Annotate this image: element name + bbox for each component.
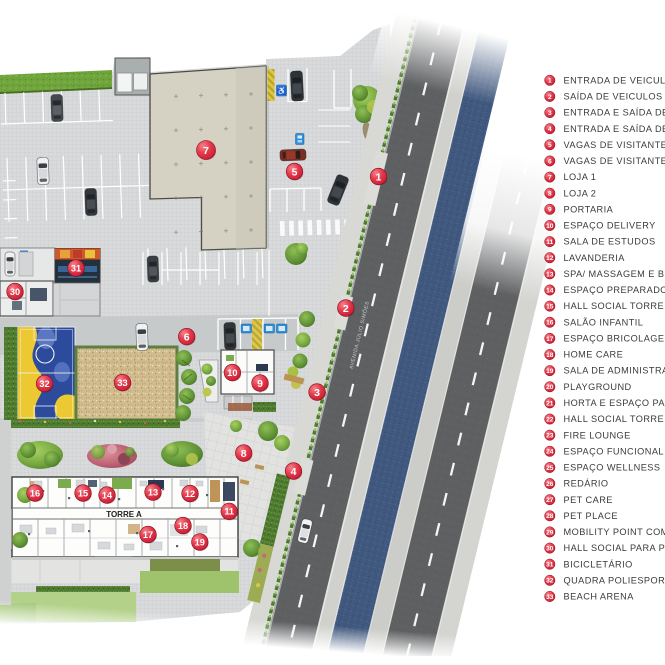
svg-text:SALÃO INFANTIL: SALÃO INFANTIL [564, 317, 644, 327]
svg-text:8: 8 [548, 191, 552, 198]
svg-text:22: 22 [546, 416, 554, 423]
svg-text:30: 30 [546, 545, 554, 552]
svg-text:SALA DE ADMINISTRAÇÃO: SALA DE ADMINISTRAÇÃO [564, 366, 665, 376]
svg-text:4: 4 [291, 466, 297, 478]
svg-text:16: 16 [30, 488, 40, 498]
svg-text:ESPAÇO WELLNESS: ESPAÇO WELLNESS [564, 463, 661, 473]
svg-text:PET CARE: PET CARE [564, 495, 613, 505]
svg-text:3: 3 [314, 387, 320, 399]
svg-text:15: 15 [546, 304, 554, 311]
svg-text:19: 19 [195, 537, 205, 547]
svg-text:2: 2 [548, 94, 552, 101]
svg-text:7: 7 [548, 174, 552, 181]
svg-text:ESPAÇO PREPARADO PARA MERCADO: ESPAÇO PREPARADO PARA MERCADO [564, 285, 665, 295]
svg-text:LAVANDERIA: LAVANDERIA [564, 253, 626, 263]
svg-text:♿: ♿ [277, 86, 287, 96]
svg-text:4: 4 [548, 126, 552, 133]
svg-text:31: 31 [546, 562, 554, 569]
svg-text:17: 17 [546, 336, 554, 343]
svg-text:SALA DE ESTUDOS: SALA DE ESTUDOS [564, 237, 656, 247]
svg-text:23: 23 [546, 433, 554, 440]
svg-text:LOJA 1: LOJA 1 [564, 172, 597, 182]
svg-text:8: 8 [241, 448, 247, 460]
svg-text:7: 7 [203, 145, 209, 157]
svg-text:32: 32 [39, 379, 49, 389]
svg-text:18: 18 [178, 521, 188, 531]
svg-text:6: 6 [184, 331, 190, 343]
svg-text:25: 25 [546, 465, 554, 472]
svg-text:16: 16 [546, 320, 554, 327]
svg-text:10: 10 [546, 223, 554, 230]
svg-text:30: 30 [10, 287, 20, 297]
svg-text:10: 10 [227, 368, 237, 378]
svg-text:26: 26 [546, 481, 554, 488]
svg-text:21: 21 [546, 400, 554, 407]
svg-text:REDÁRIO: REDÁRIO [564, 479, 609, 489]
svg-text:ENTRADA E SAÍDA DE VEÍCULOS: ENTRADA E SAÍDA DE VEÍCULOS [564, 124, 665, 134]
svg-text:PORTARIA: PORTARIA [564, 204, 614, 214]
svg-text:14: 14 [102, 490, 113, 500]
svg-text:20: 20 [546, 384, 554, 391]
svg-text:31: 31 [71, 263, 81, 273]
svg-text:11: 11 [224, 507, 234, 517]
svg-text:19: 19 [546, 368, 554, 375]
svg-text:VAGAS DE VISITANTES: VAGAS DE VISITANTES [564, 156, 665, 166]
svg-text:3: 3 [548, 110, 552, 117]
svg-text:33: 33 [546, 594, 554, 601]
svg-text:15: 15 [78, 488, 88, 498]
svg-text:2: 2 [343, 303, 349, 315]
svg-text:QUADRA POLIESPORTIVA: QUADRA POLIESPORTIVA [564, 575, 665, 585]
svg-text:9: 9 [257, 378, 263, 390]
svg-text:ESPAÇO DELIVERY: ESPAÇO DELIVERY [564, 221, 656, 231]
svg-text:PET PLACE: PET PLACE [564, 511, 618, 521]
svg-text:SAÍDA DE VEICULOS: SAÍDA DE VEICULOS [564, 92, 663, 102]
svg-text:5: 5 [548, 142, 552, 149]
svg-text:ESPAÇO FUNCIONAL: ESPAÇO FUNCIONAL [564, 446, 664, 456]
svg-text:12: 12 [185, 489, 195, 499]
svg-text:28: 28 [546, 513, 554, 520]
svg-text:13: 13 [546, 271, 554, 278]
svg-text:5: 5 [292, 166, 298, 178]
svg-text:VAGAS DE VISITANTES: VAGAS DE VISITANTES [564, 140, 665, 150]
svg-text:11: 11 [546, 239, 553, 246]
svg-text:FIRE LOUNGE: FIRE LOUNGE [564, 430, 631, 440]
svg-text:HORTA E ESPAÇO PARA COMPOSTAGE: HORTA E ESPAÇO PARA COMPOSTAGEM [564, 398, 665, 408]
svg-text:HALL SOCIAL TORRE B: HALL SOCIAL TORRE B [564, 414, 665, 424]
svg-text:13: 13 [148, 487, 158, 497]
svg-text:SPA/ MASSAGEM E BELEZA: SPA/ MASSAGEM E BELEZA [564, 269, 665, 279]
svg-text:ENTRADA E SAÍDA DE MORADORES: ENTRADA E SAÍDA DE MORADORES [564, 108, 665, 118]
svg-text:9: 9 [548, 207, 552, 214]
svg-text:BEACH ARENA: BEACH ARENA [564, 592, 635, 602]
svg-text:17: 17 [143, 530, 153, 540]
svg-text:27: 27 [546, 497, 554, 504]
svg-text:TORRE A: TORRE A [106, 510, 142, 519]
svg-text:32: 32 [546, 578, 554, 585]
svg-text:LOJA 2: LOJA 2 [564, 188, 597, 198]
svg-text:PLAYGROUND: PLAYGROUND [564, 382, 632, 392]
svg-text:33: 33 [117, 378, 127, 388]
svg-text:ESPAÇO BRICOLAGEM: ESPAÇO BRICOLAGEM [564, 333, 665, 343]
svg-text:29: 29 [546, 529, 554, 536]
svg-text:HALL SOCIAL TORRE A: HALL SOCIAL TORRE A [564, 301, 665, 311]
svg-text:BICICLETÁRIO: BICICLETÁRIO [564, 559, 633, 569]
svg-text:ENTRADA DE VEICULOS: ENTRADA DE VEICULOS [564, 75, 665, 85]
svg-text:6: 6 [548, 158, 552, 165]
svg-text:HALL SOCIAL PARA PEDESTRES: HALL SOCIAL PARA PEDESTRES [564, 543, 665, 553]
svg-text:1: 1 [548, 78, 552, 85]
svg-text:HOME CARE: HOME CARE [564, 350, 624, 360]
svg-text:24: 24 [546, 449, 554, 456]
svg-text:MOBILITY POINT COM BICICLETÁRI: MOBILITY POINT COM BICICLETÁRIO [564, 527, 665, 537]
svg-text:12: 12 [546, 255, 554, 262]
svg-text:1: 1 [376, 171, 382, 183]
svg-text:14: 14 [546, 287, 554, 294]
svg-text:18: 18 [546, 352, 554, 359]
